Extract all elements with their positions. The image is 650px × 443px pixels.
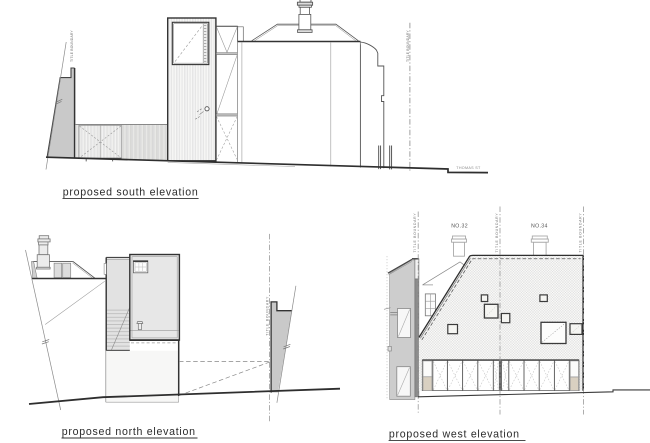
- svg-text:proposed south elevation: proposed south elevation: [63, 187, 199, 199]
- svg-text:TITLE BOUNDARY: TITLE BOUNDARY: [413, 213, 417, 253]
- svg-text:TITLE BOUNDARY: TITLE BOUNDARY: [265, 296, 269, 336]
- svg-text:proposed north elevation: proposed north elevation: [62, 426, 196, 438]
- svg-text:TITLE BOUNDARY: TITLE BOUNDARY: [495, 213, 499, 253]
- svg-text:TITLE BOUNDARY: TITLE BOUNDARY: [70, 30, 74, 62]
- svg-text:TITLE BOUNDARY: TITLE BOUNDARY: [406, 30, 410, 62]
- svg-text:TITLE BOUNDARY: TITLE BOUNDARY: [579, 213, 583, 253]
- svg-text:proposed west elevation: proposed west elevation: [389, 428, 520, 440]
- svg-text:THOMAS ST: THOMAS ST: [456, 166, 481, 170]
- svg-text:NO.32: NO.32: [451, 223, 468, 229]
- svg-text:NO.34: NO.34: [531, 223, 548, 229]
